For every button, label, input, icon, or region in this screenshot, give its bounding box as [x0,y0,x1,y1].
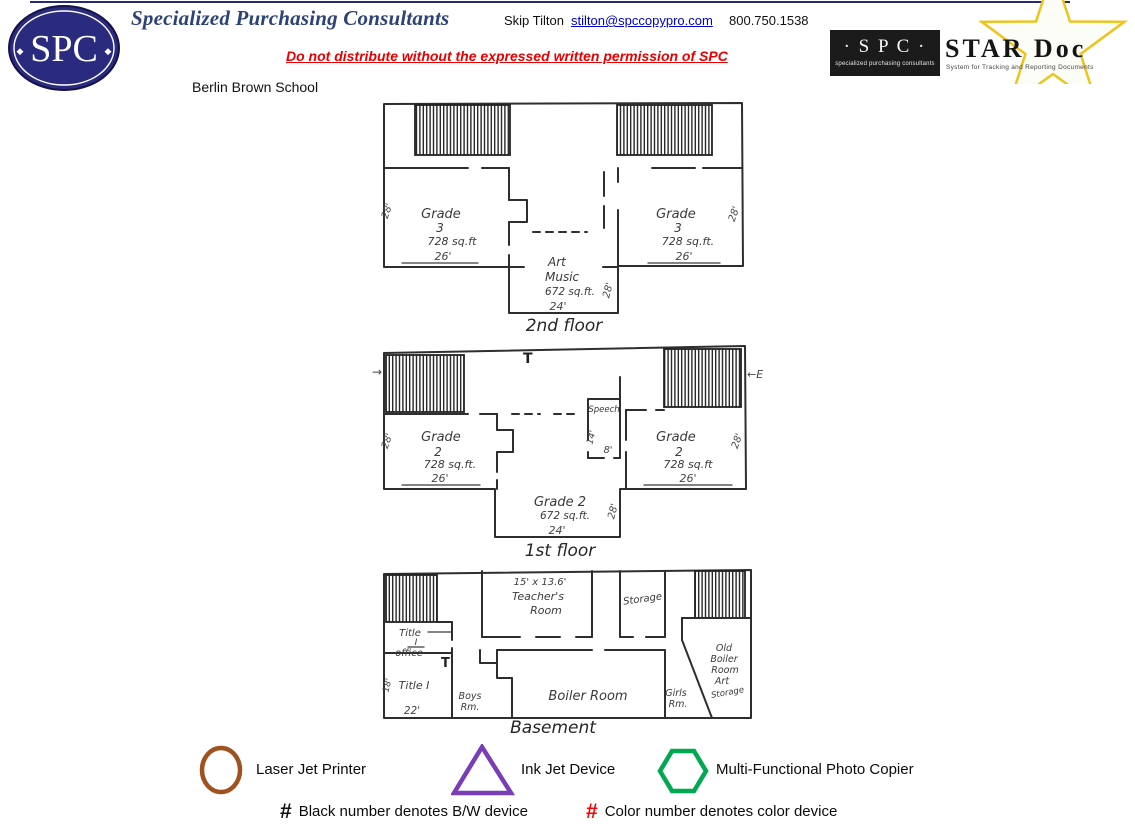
room-area: 672 sq.ft. [545,286,595,298]
spc-logo-diamond-left: ◆ [17,46,24,56]
floor-plan-1st: → ←E T Grade 2 728 sq.ft. 26' 28' Grade … [368,342,772,560]
dim-width: 22' [404,705,420,717]
dim-width: 24' [548,524,565,537]
contact-email-link[interactable]: stilton@spccopypro.com [571,13,713,28]
room-area: 728 sq.ft [664,458,714,471]
dim-width: 26' [434,250,451,263]
room-label: Art [714,676,730,687]
contact-name: Skip Tilton [504,13,564,28]
room-label: Grade [656,207,696,222]
legend-laser-jet-label: Laser Jet Printer [256,761,366,778]
room-label: Music [545,270,580,284]
dim-height: 28' [380,432,396,450]
star-doc-logo: · S P C · specialized purchasing consult… [828,0,1135,84]
room-label: Old [716,643,733,654]
stairs-hatch [617,105,712,155]
page: SPC ◆ ◆ Specialized Purchasing Consultan… [0,0,1135,824]
room-label: Art [547,255,567,269]
room-label: Room [711,665,738,676]
star-doc-spc-text: · S P C · [830,36,940,58]
room-label: Girls [665,688,687,699]
floor-plan-basement: Title I office T Title I 22' 18' Boys Rm… [373,560,777,742]
room-area: 728 sq.ft. [662,235,714,248]
room-area: 728 sq.ft [428,235,478,248]
black-hash-symbol: # [280,800,292,823]
school-name: Berlin Brown School [192,79,318,95]
t-mark: T [523,351,533,367]
ink-jet-device-icon [451,744,515,796]
room-label: I [415,638,418,648]
dim-height: 18' [381,677,394,693]
entry-mark: ←E [747,368,763,381]
star-doc-spc-subtext: specialized purchasing consultants [830,61,940,67]
room-label: Boys [459,691,482,702]
dim-height: 28' [727,205,743,223]
room-area: 672 sq.ft. [540,510,590,522]
dim-height: 28' [606,502,621,520]
room-label: Grade [656,430,696,445]
spc-logo-text: SPC [30,28,98,70]
legend-note-bw: #Black number denotes B/W device [280,800,528,824]
left-arrow-mark: → [372,365,382,379]
dim-width: 26' [679,472,696,485]
floor2-labels: Grade 3 728 sq.ft 26' 28' Grade 3 728 sq… [380,202,743,336]
room-label: Boiler Room [548,689,627,704]
legend-note-color-text: Color number denotes color device [605,803,838,820]
room-label: Room [530,604,562,617]
stairs-hatch [695,571,745,618]
dim-height: 28' [730,432,746,450]
room-label: 3 [436,221,444,235]
star-doc-subtitle: System for Tracking and Reporting Docume… [946,64,1094,71]
company-name: Specialized Purchasing Consultants [131,6,449,31]
room-label: Storage [710,685,744,701]
room-label: office [395,648,423,659]
legend-note-bw-text: Black number denotes B/W device [299,803,528,820]
floor-title-basement: Basement [510,718,597,738]
dim-height: 14' [585,429,598,445]
room-area: 728 sq.ft. [424,458,476,471]
star-doc-spc-box: · S P C · specialized purchasing consult… [830,30,940,76]
room-dims: 15' x 13.6' [514,577,567,588]
room-label: Speech [588,405,619,415]
stairs-hatch [415,105,510,155]
room-label: Teacher's [512,590,564,603]
room-label: Rm. [461,702,480,713]
photo-copier-icon [657,748,709,794]
contact-phone: 800.750.1538 [729,13,809,28]
laser-jet-printer-icon [198,744,246,796]
dim-width: 24' [549,300,566,313]
room-label: 2 [675,445,683,459]
room-label: Storage [623,591,663,607]
dim-width: 26' [431,472,448,485]
dim-height: 28' [380,202,396,220]
legend-ink-jet-label: Ink Jet Device [521,761,615,778]
red-hash-symbol: # [586,800,598,823]
room-label: Grade [421,430,461,445]
floor-plan-2nd: Grade 3 728 sq.ft 26' 28' Grade 3 728 sq… [370,96,772,342]
room-label: Rm. [669,699,688,710]
dim-width: 26' [675,250,692,263]
stairs-hatch [664,349,741,407]
room-label: Grade 2 [534,495,586,510]
legend-note-color: #Color number denotes color device [586,800,837,824]
stairs-hatch [386,575,437,622]
spc-logo-diamond-right: ◆ [105,46,112,56]
room-label: Grade [421,207,461,222]
t-mark: T [441,656,450,671]
legend-copier-label: Multi-Functional Photo Copier [716,761,914,778]
room-label: 3 [674,221,682,235]
spc-logo: SPC ◆ ◆ [6,4,122,92]
dim-height: 28' [601,281,616,299]
room-label: 2 [434,445,442,459]
floor-title-2nd: 2nd floor [526,316,604,336]
room-label: Title [399,628,421,639]
room-label: Boiler [710,654,738,665]
distribution-warning: Do not distribute without the expressed … [286,48,728,64]
dim-width: 8' [603,445,612,456]
star-doc-title: STAR Doc [945,34,1086,64]
stairs-hatch [386,355,464,412]
room-label: Title I [399,679,430,692]
floor-title-1st: 1st floor [525,541,597,560]
